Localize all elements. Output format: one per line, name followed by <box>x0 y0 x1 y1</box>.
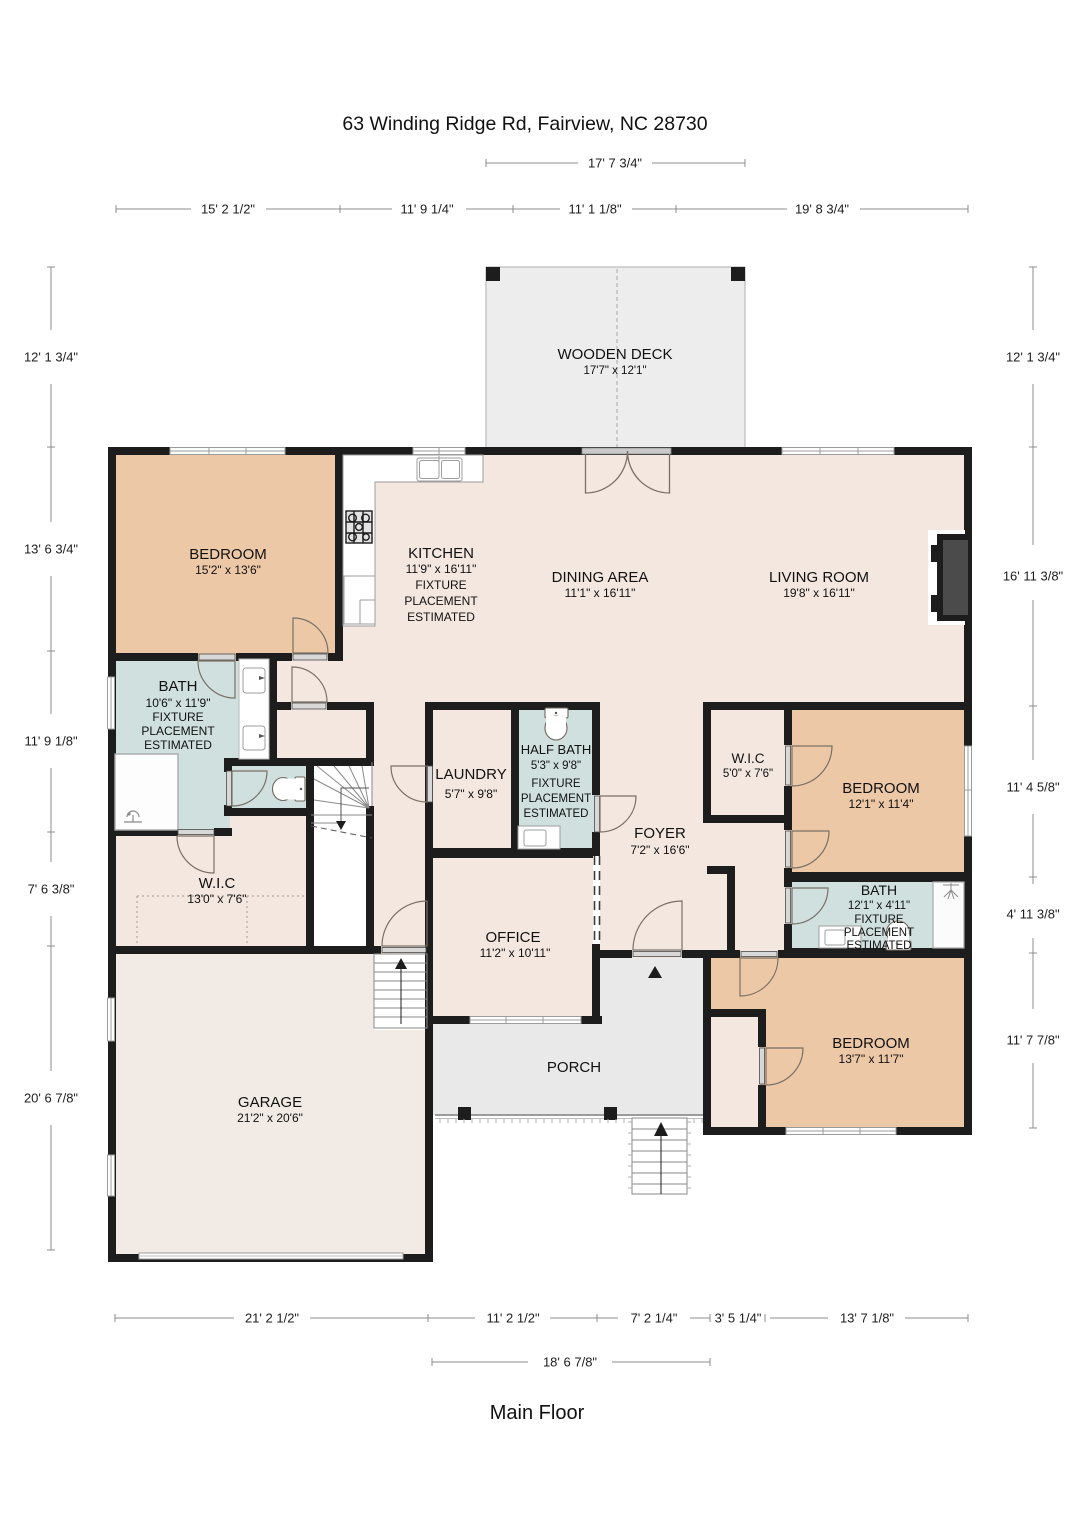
svg-text:13' 7 1/8": 13' 7 1/8" <box>840 1311 894 1326</box>
svg-text:ESTIMATED: ESTIMATED <box>144 738 212 752</box>
svg-text:PLACEMENT: PLACEMENT <box>404 594 478 608</box>
svg-text:W.I.C: W.I.C <box>732 751 765 766</box>
svg-text:11' 2 1/2": 11' 2 1/2" <box>486 1311 540 1326</box>
svg-text:13'0" x 7'6": 13'0" x 7'6" <box>187 892 246 906</box>
svg-text:HALF BATH: HALF BATH <box>521 742 592 757</box>
svg-text:FIXTURE: FIXTURE <box>531 778 581 790</box>
svg-text:11' 7 7/8": 11' 7 7/8" <box>1006 1033 1060 1048</box>
svg-text:FOYER: FOYER <box>634 825 686 842</box>
svg-text:20' 6 7/8": 20' 6 7/8" <box>24 1091 78 1106</box>
svg-text:12' 1 3/4": 12' 1 3/4" <box>24 350 78 365</box>
svg-text:11' 4 5/8": 11' 4 5/8" <box>1006 780 1060 795</box>
svg-text:BATH: BATH <box>159 678 198 695</box>
svg-text:7' 6 3/8": 7' 6 3/8" <box>28 882 75 897</box>
svg-text:13' 6 3/4": 13' 6 3/4" <box>24 542 78 557</box>
svg-text:BATH: BATH <box>861 882 897 898</box>
svg-text:PLACEMENT: PLACEMENT <box>844 927 914 939</box>
svg-text:15' 2 1/2": 15' 2 1/2" <box>201 202 255 217</box>
svg-text:WOODEN DECK: WOODEN DECK <box>557 346 672 363</box>
svg-text:FIXTURE: FIXTURE <box>854 914 904 926</box>
svg-text:11'2" x 10'11": 11'2" x 10'11" <box>480 946 551 960</box>
svg-text:5'0" x 7'6": 5'0" x 7'6" <box>723 768 773 780</box>
svg-text:63 Winding Ridge Rd, Fairview,: 63 Winding Ridge Rd, Fairview, NC 28730 <box>342 113 707 135</box>
svg-text:13'7" x 11'7": 13'7" x 11'7" <box>839 1052 904 1066</box>
svg-text:ESTIMATED: ESTIMATED <box>524 808 589 820</box>
svg-text:10'6" x 11'9": 10'6" x 11'9" <box>146 696 211 710</box>
svg-text:21'2" x 20'6": 21'2" x 20'6" <box>237 1111 303 1125</box>
svg-text:FIXTURE: FIXTURE <box>415 578 466 592</box>
svg-text:PLACEMENT: PLACEMENT <box>521 793 591 805</box>
svg-text:17' 7 3/4": 17' 7 3/4" <box>588 156 642 171</box>
svg-text:11' 9 1/8": 11' 9 1/8" <box>24 734 78 749</box>
svg-text:BEDROOM: BEDROOM <box>189 546 267 563</box>
svg-text:12'1" x 4'11": 12'1" x 4'11" <box>848 900 910 912</box>
svg-text:DINING AREA: DINING AREA <box>552 569 649 586</box>
svg-text:3' 5 1/4": 3' 5 1/4" <box>715 1311 762 1326</box>
svg-text:5'7" x 9'8": 5'7" x 9'8" <box>445 787 497 801</box>
svg-text:ESTIMATED: ESTIMATED <box>407 610 475 624</box>
svg-text:19' 8 3/4": 19' 8 3/4" <box>795 202 849 217</box>
svg-text:PLACEMENT: PLACEMENT <box>141 724 215 738</box>
svg-text:21' 2 1/2": 21' 2 1/2" <box>245 1311 299 1326</box>
svg-text:19'8" x 16'11": 19'8" x 16'11" <box>783 586 855 600</box>
svg-text:OFFICE: OFFICE <box>486 929 541 946</box>
svg-text:GARAGE: GARAGE <box>238 1094 302 1111</box>
svg-text:LAUNDRY: LAUNDRY <box>435 766 506 783</box>
svg-text:BEDROOM: BEDROOM <box>832 1035 910 1052</box>
svg-text:4' 11 3/8": 4' 11 3/8" <box>1006 907 1060 922</box>
svg-text:11'9" x 16'11": 11'9" x 16'11" <box>406 562 477 576</box>
svg-text:12'1" x 11'4": 12'1" x 11'4" <box>849 797 914 811</box>
svg-text:15'2" x 13'6": 15'2" x 13'6" <box>195 563 261 577</box>
svg-text:11' 1 1/8": 11' 1 1/8" <box>568 202 622 217</box>
svg-text:16' 11 3/8": 16' 11 3/8" <box>1003 569 1064 584</box>
svg-text:ESTIMATED: ESTIMATED <box>847 940 912 952</box>
svg-text:7' 2 1/4": 7' 2 1/4" <box>631 1311 678 1326</box>
svg-text:PORCH: PORCH <box>547 1059 601 1076</box>
svg-text:W.I.C: W.I.C <box>199 875 236 892</box>
svg-text:BEDROOM: BEDROOM <box>842 780 920 797</box>
svg-text:12' 1 3/4": 12' 1 3/4" <box>1006 350 1060 365</box>
svg-text:17'7" x 12'1": 17'7" x 12'1" <box>583 365 646 377</box>
svg-text:KITCHEN: KITCHEN <box>408 545 474 562</box>
svg-text:18' 6 7/8": 18' 6 7/8" <box>543 1355 597 1370</box>
svg-text:LIVING ROOM: LIVING ROOM <box>769 569 869 586</box>
svg-text:11'1" x 16'11": 11'1" x 16'11" <box>565 586 636 600</box>
svg-text:Main Floor: Main Floor <box>490 1402 585 1424</box>
svg-text:FIXTURE: FIXTURE <box>152 710 203 724</box>
svg-text:7'2" x 16'6": 7'2" x 16'6" <box>630 843 689 857</box>
svg-text:5'3" x 9'8": 5'3" x 9'8" <box>531 760 581 772</box>
svg-text:11' 9 1/4": 11' 9 1/4" <box>400 202 454 217</box>
